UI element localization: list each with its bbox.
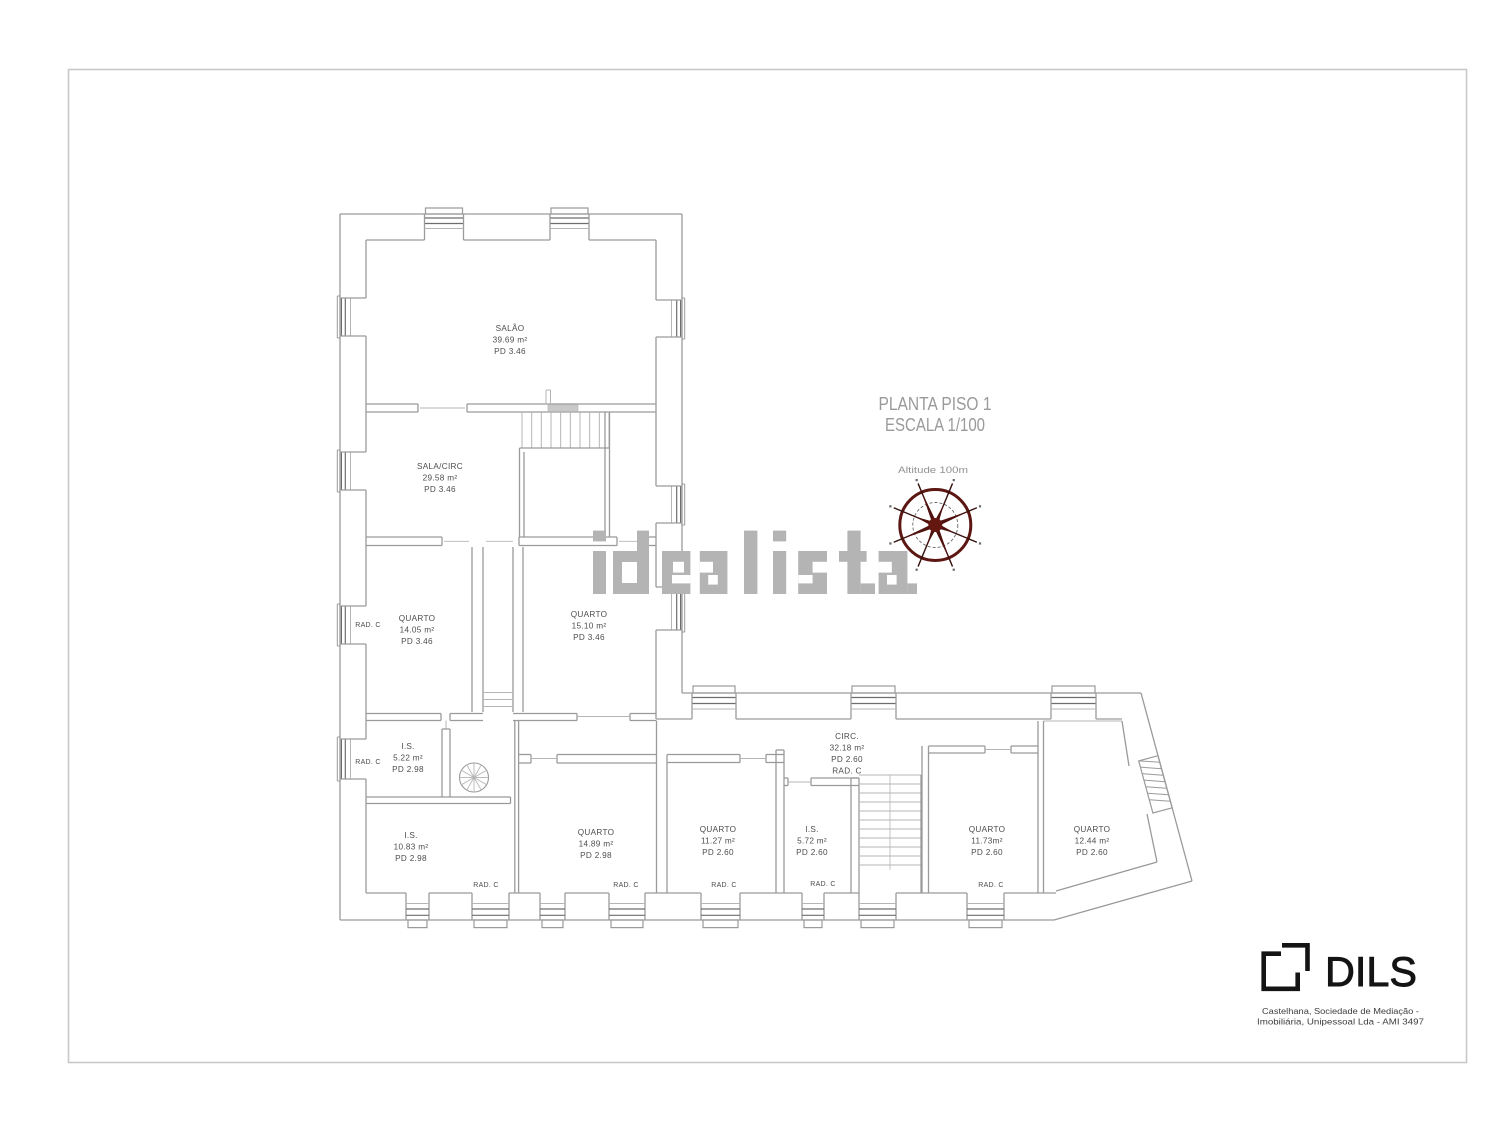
svg-text:CIRC.: CIRC. bbox=[835, 732, 859, 741]
svg-text:PD 3.46: PD 3.46 bbox=[424, 485, 456, 494]
svg-text:ESCALA 1/100: ESCALA 1/100 bbox=[885, 415, 985, 435]
svg-text:QUARTO: QUARTO bbox=[399, 614, 436, 623]
svg-text:RAD. C: RAD. C bbox=[355, 622, 381, 629]
svg-text:PD 2.98: PD 2.98 bbox=[395, 854, 427, 863]
svg-text:11.27 m²: 11.27 m² bbox=[701, 837, 735, 846]
svg-text:PD 2.98: PD 2.98 bbox=[580, 851, 612, 860]
svg-text:RAD. C: RAD. C bbox=[613, 882, 639, 889]
svg-text:PD 3.46: PD 3.46 bbox=[573, 633, 605, 642]
svg-text:14.89 m²: 14.89 m² bbox=[579, 840, 614, 849]
svg-text:Castelhana, Sociedade de Media: Castelhana, Sociedade de Mediação - bbox=[1262, 1006, 1419, 1016]
svg-text:DILS: DILS bbox=[1325, 948, 1417, 995]
svg-text:5.22 m²: 5.22 m² bbox=[393, 754, 423, 763]
svg-text:RAD. C: RAD. C bbox=[711, 882, 737, 889]
svg-text:PD 2.60: PD 2.60 bbox=[796, 848, 828, 857]
svg-text:QUARTO: QUARTO bbox=[571, 610, 608, 619]
svg-text:PD 2.60: PD 2.60 bbox=[702, 848, 734, 857]
svg-text:39.69 m²: 39.69 m² bbox=[493, 336, 528, 345]
svg-text:5.72 m²: 5.72 m² bbox=[797, 837, 827, 846]
svg-text:QUARTO: QUARTO bbox=[578, 828, 615, 837]
svg-text:PD 3.46: PD 3.46 bbox=[494, 347, 526, 356]
svg-text:QUARTO: QUARTO bbox=[969, 825, 1006, 834]
svg-text:12.44 m²: 12.44 m² bbox=[1075, 837, 1110, 846]
svg-text:I.S.: I.S. bbox=[404, 831, 418, 840]
svg-text:RAD. C: RAD. C bbox=[978, 882, 1004, 889]
svg-text:PD 2.60: PD 2.60 bbox=[831, 755, 863, 764]
svg-text:14.05 m²: 14.05 m² bbox=[400, 626, 435, 635]
svg-text:32.18 m²: 32.18 m² bbox=[830, 744, 865, 753]
svg-text:QUARTO: QUARTO bbox=[1074, 825, 1111, 834]
svg-text:Imobiliária, Unipessoal Lda -: Imobiliária, Unipessoal Lda - AMI 3497 bbox=[1257, 1017, 1424, 1027]
svg-text:QUARTO: QUARTO bbox=[700, 825, 737, 834]
svg-text:RAD. C: RAD. C bbox=[355, 759, 381, 766]
svg-text:11.73m²: 11.73m² bbox=[971, 837, 1003, 846]
svg-text:PLANTA PISO 1: PLANTA PISO 1 bbox=[879, 394, 992, 414]
svg-text:RAD. C: RAD. C bbox=[832, 767, 862, 776]
svg-text:RAD. C: RAD. C bbox=[810, 881, 836, 888]
svg-text:PD 2.60: PD 2.60 bbox=[971, 848, 1003, 857]
svg-text:PD 2.60: PD 2.60 bbox=[1076, 848, 1108, 857]
svg-text:10.83 m²: 10.83 m² bbox=[394, 843, 429, 852]
svg-text:Altitude 100m: Altitude 100m bbox=[898, 465, 968, 475]
svg-text:29.58 m²: 29.58 m² bbox=[423, 474, 458, 483]
svg-text:PD 3.46: PD 3.46 bbox=[401, 637, 433, 646]
svg-text:PD 2.98: PD 2.98 bbox=[392, 765, 424, 774]
svg-text:15.10 m²: 15.10 m² bbox=[572, 622, 607, 631]
svg-text:I.S.: I.S. bbox=[401, 742, 415, 751]
svg-text:SALÃO: SALÃO bbox=[496, 323, 525, 333]
svg-text:SALA/CIRC: SALA/CIRC bbox=[417, 462, 463, 471]
svg-text:I.S.: I.S. bbox=[805, 825, 819, 834]
svg-text:RAD. C: RAD. C bbox=[473, 882, 499, 889]
